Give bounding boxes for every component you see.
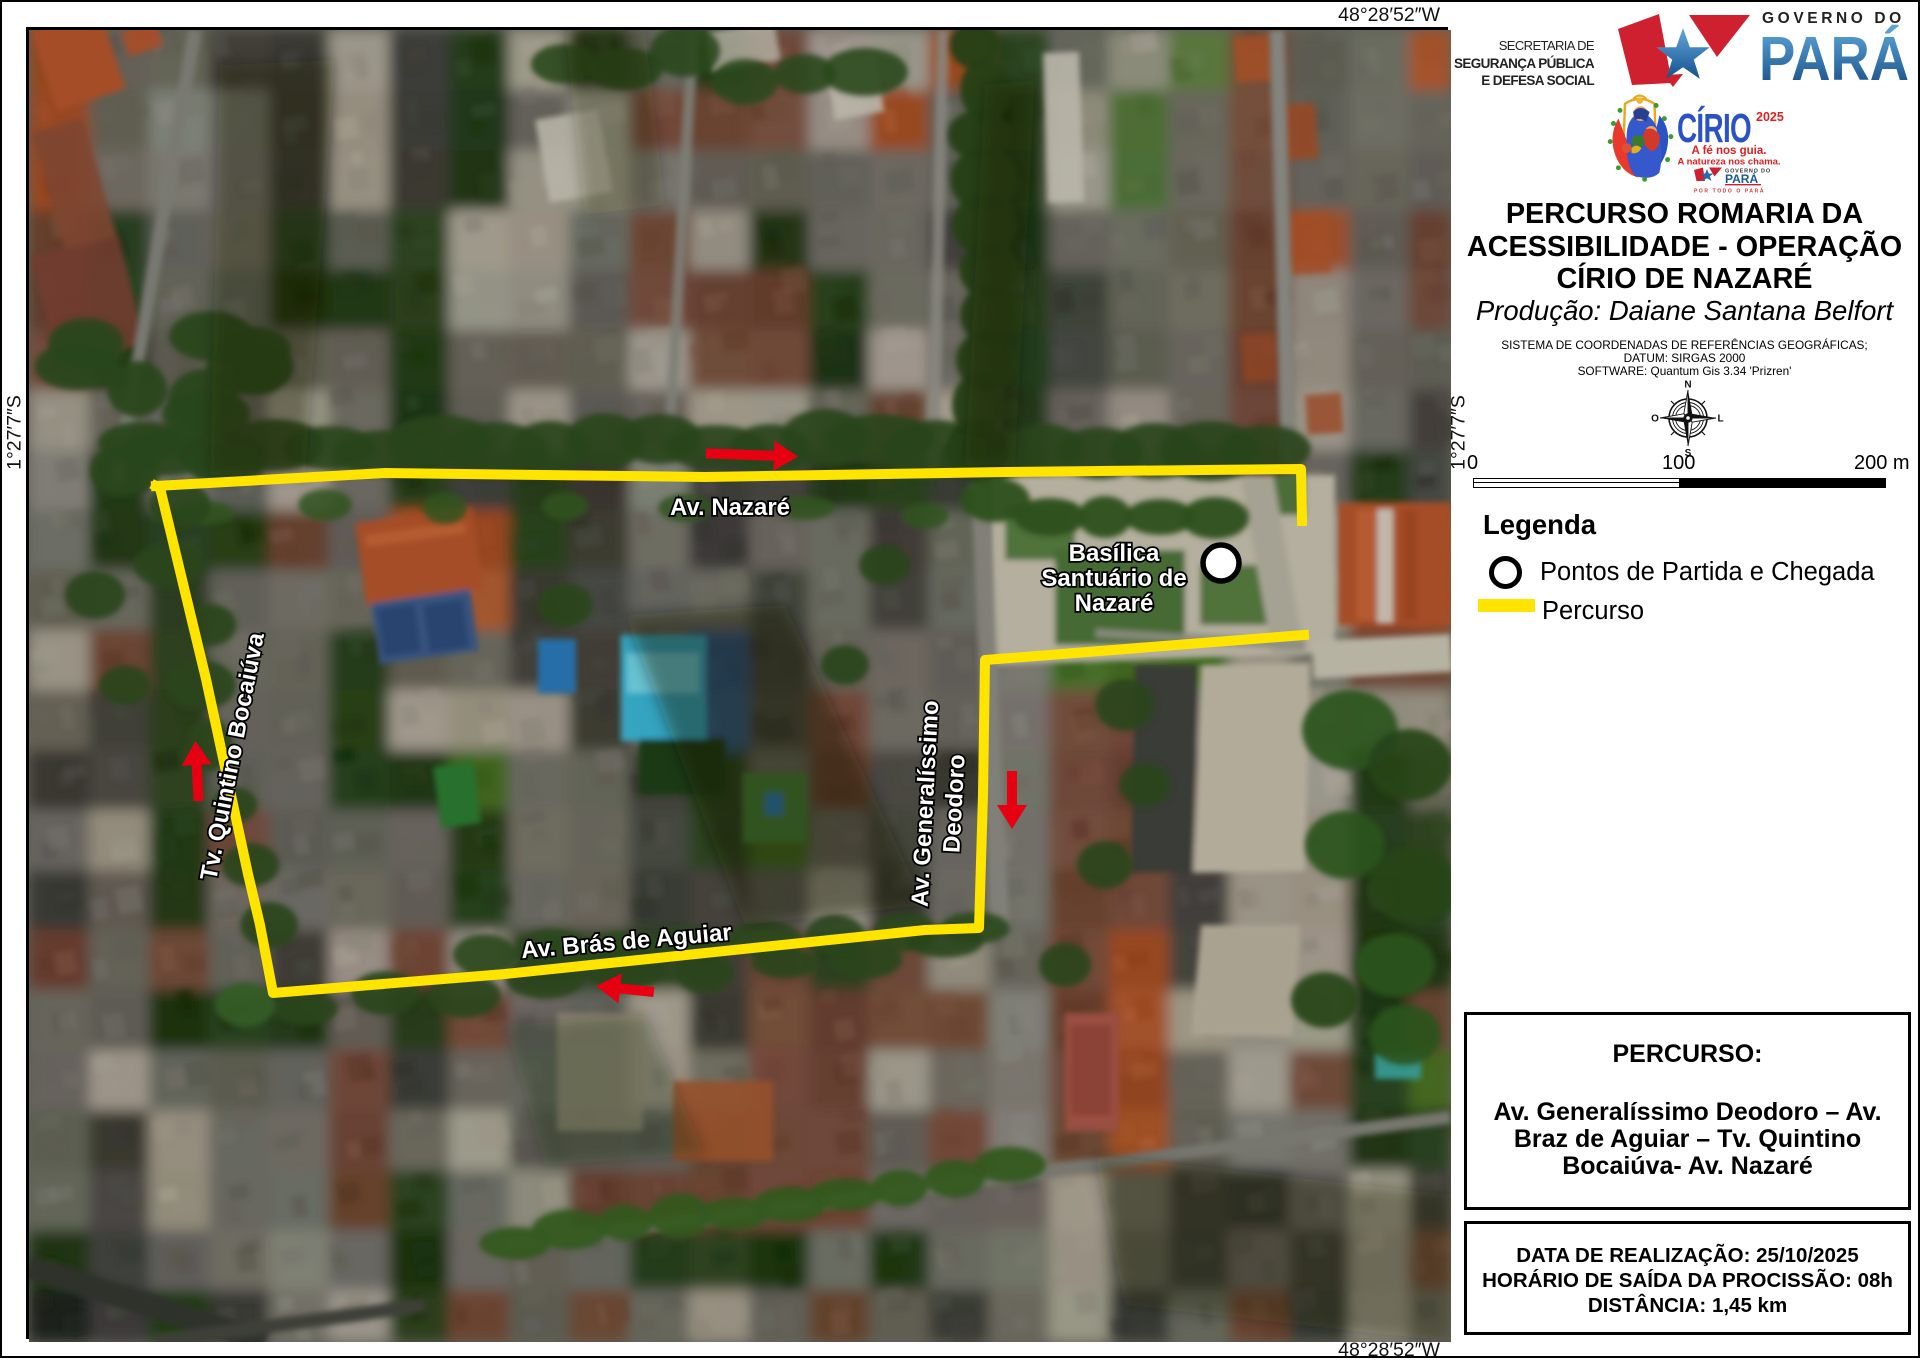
svg-text:2025: 2025	[1756, 110, 1784, 124]
svg-text:PARÁ: PARÁ	[1759, 25, 1909, 92]
svg-text:Nazaré: Nazaré	[1075, 590, 1154, 617]
svg-text:N: N	[1684, 380, 1691, 391]
svg-text:O: O	[1651, 414, 1659, 425]
svg-text:A natureza nos chama.: A natureza nos chama.	[1677, 157, 1780, 168]
svg-text:Deodoro: Deodoro	[938, 754, 970, 854]
svg-text:PARÁ: PARÁ	[1725, 171, 1758, 186]
svg-text:L: L	[1717, 414, 1723, 425]
svg-text:A fé nos guia.: A fé nos guia.	[1692, 145, 1767, 157]
svg-text:Av. Nazaré: Av. Nazaré	[670, 494, 790, 521]
svg-text:POR TODO O PARÁ: POR TODO O PARÁ	[1694, 188, 1765, 195]
svg-text:Basílica: Basílica	[1069, 540, 1160, 567]
svg-text:Santuário de: Santuário de	[1041, 565, 1186, 592]
